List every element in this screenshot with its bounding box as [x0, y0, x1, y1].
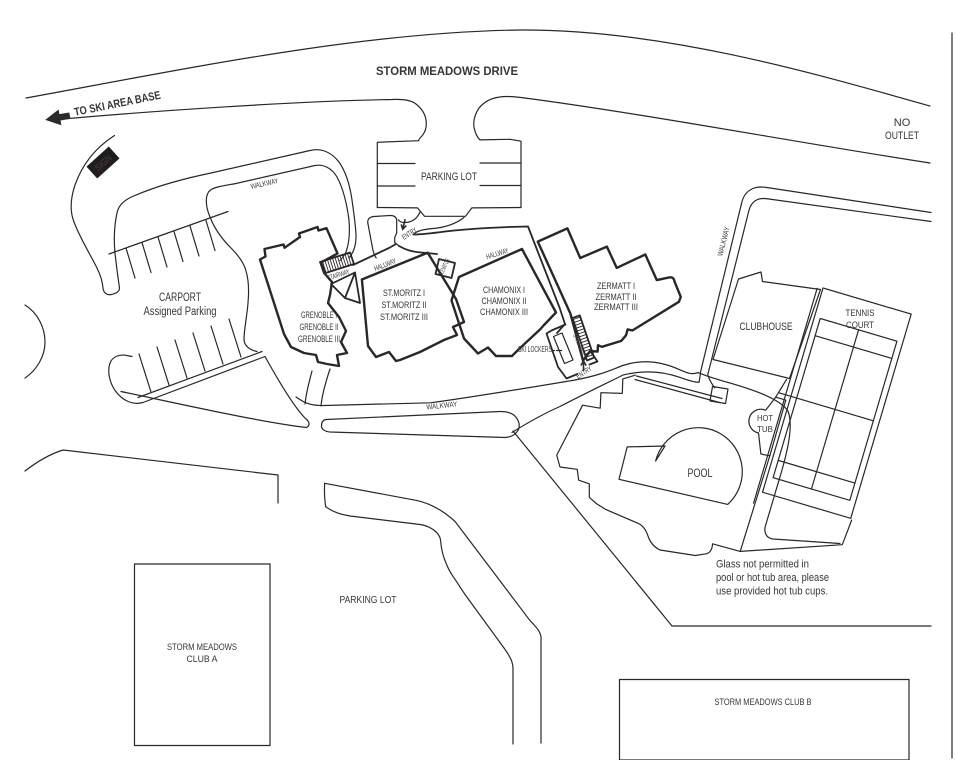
svg-text:WALKWAY: WALKWAY: [426, 399, 458, 411]
svg-text:use provided hot tub cups.: use provided hot tub cups.: [716, 586, 828, 598]
svg-text:ST.MORITZ II: ST.MORITZ II: [382, 300, 427, 311]
svg-text:ELEVATOR: ELEVATOR: [438, 258, 452, 277]
svg-text:TENNIS: TENNIS: [846, 308, 875, 319]
svg-text:WALKWAY: WALKWAY: [250, 176, 279, 191]
svg-text:CLUBHOUSE: CLUBHOUSE: [740, 321, 793, 333]
svg-text:SKI LOCKERS: SKI LOCKERS: [518, 345, 552, 354]
svg-text:STORM MEADOWS DRIVE: STORM MEADOWS DRIVE: [376, 66, 518, 78]
svg-text:PARKING LOT: PARKING LOT: [340, 594, 397, 606]
svg-text:CHAMONIX I: CHAMONIX I: [483, 285, 525, 296]
svg-text:CLUB A: CLUB A: [187, 654, 219, 665]
svg-text:OUTLET: OUTLET: [885, 130, 919, 142]
svg-text:ST.MORITZ I: ST.MORITZ I: [383, 288, 425, 299]
svg-text:HOT: HOT: [757, 413, 773, 423]
svg-text:STORM MEADOWS CLUB B: STORM MEADOWS CLUB B: [715, 697, 812, 708]
svg-text:TUB: TUB: [757, 424, 773, 434]
svg-text:GRENOBLE II: GRENOBLE II: [300, 322, 339, 333]
svg-text:Assigned Parking: Assigned Parking: [144, 306, 217, 318]
svg-text:CHAMONIX II: CHAMONIX II: [482, 296, 527, 307]
svg-text:Glass not permitted in: Glass not permitted in: [716, 559, 809, 571]
svg-text:CHAMONIX III: CHAMONIX III: [480, 307, 528, 318]
svg-text:STORM MEADOWS: STORM MEADOWS: [167, 642, 237, 653]
svg-text:ST.MORITZ III: ST.MORITZ III: [380, 312, 428, 323]
svg-text:PARKING LOT: PARKING LOT: [421, 171, 477, 183]
svg-text:NO: NO: [894, 117, 911, 129]
svg-text:ZERMATT I: ZERMATT I: [597, 281, 635, 292]
svg-text:GRENOBLE I: GRENOBLE I: [301, 310, 337, 321]
svg-text:COURT: COURT: [846, 320, 874, 331]
svg-text:POOL: POOL: [688, 466, 713, 480]
svg-text:CARPORT: CARPORT: [159, 292, 201, 304]
svg-text:pool or hot tub area, please: pool or hot tub area, please: [716, 572, 829, 584]
svg-text:GRENOBLE III: GRENOBLE III: [298, 334, 340, 345]
svg-text:ZERMATT III: ZERMATT III: [594, 302, 638, 313]
